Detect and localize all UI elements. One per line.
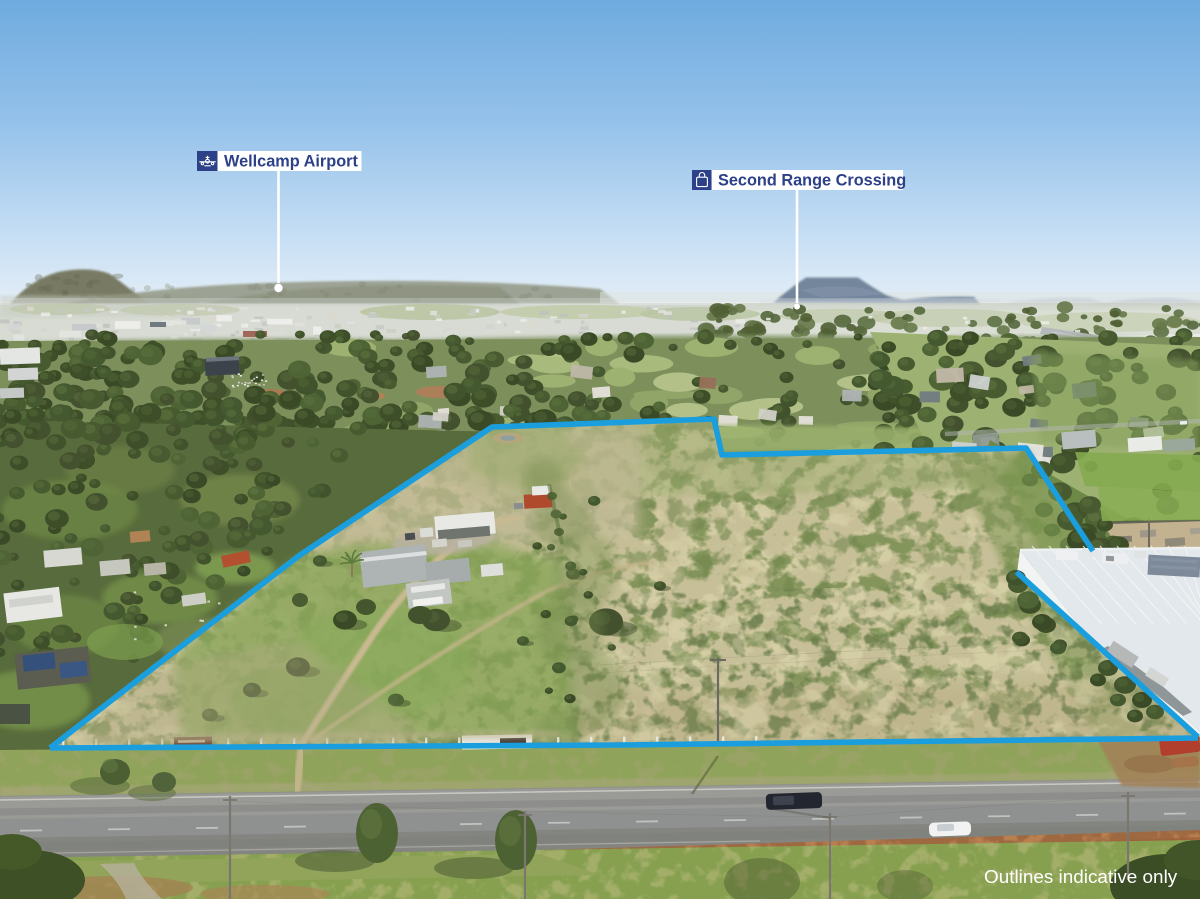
svg-text:Second Range Crossing: Second Range Crossing xyxy=(718,172,906,190)
svg-text:Outlines indicative only: Outlines indicative only xyxy=(984,867,1178,888)
svg-text:Wellcamp Airport: Wellcamp Airport xyxy=(224,153,358,171)
